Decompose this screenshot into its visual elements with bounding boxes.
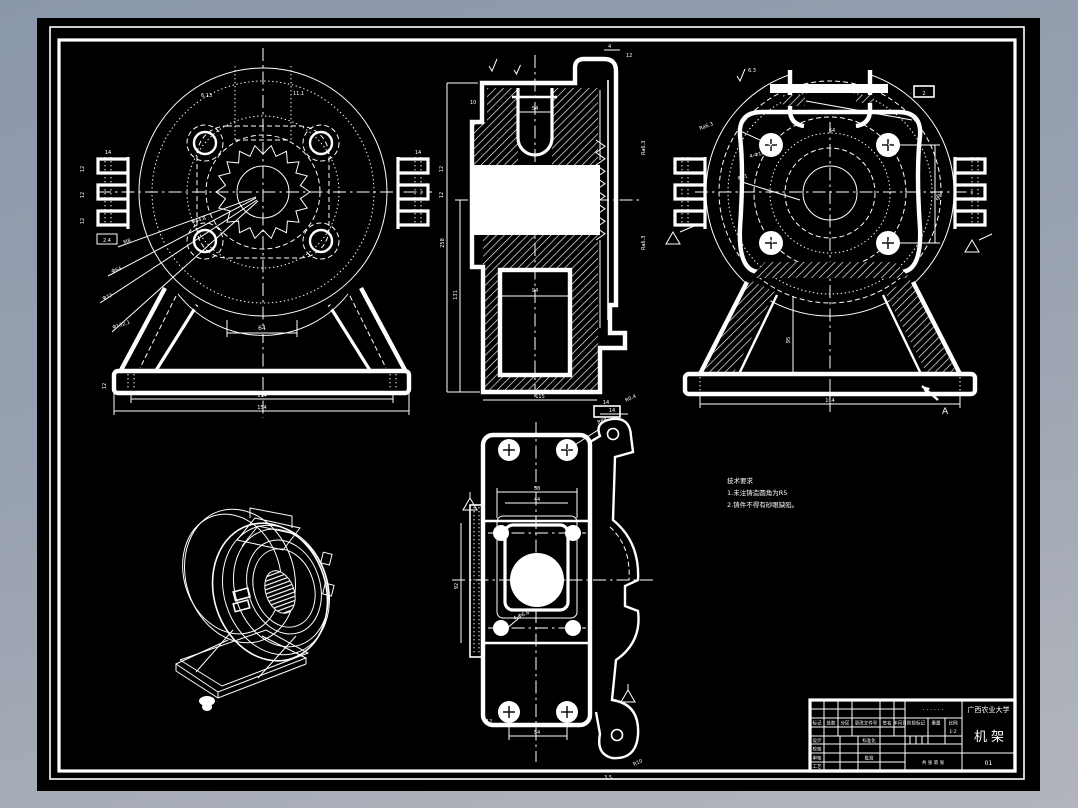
dim-label: 12 [80, 218, 86, 224]
view-arrow-label: A [942, 407, 949, 417]
title-block-label: 标记 [813, 720, 822, 727]
dim-label: 114 [257, 393, 267, 399]
notes-title: 技术要求 [727, 476, 754, 485]
sheet-number: 01 [985, 760, 993, 767]
dim-label: 14 [105, 150, 111, 156]
title-block-label: 批准 [865, 755, 874, 762]
dim-label: 14 [603, 400, 609, 406]
dim-label: 12 [439, 192, 445, 198]
title-block-label: 工艺 [813, 764, 822, 770]
dim-label: 44 [534, 497, 540, 503]
dim-label: 54 [534, 730, 540, 736]
title-block-label: 比例 [949, 720, 958, 727]
title-block-label: 签名 [883, 720, 892, 727]
cad-drawing-screenshot: 64 114 154 12 14 14 12 12 12 12 12 2.4 M… [0, 0, 1078, 808]
dim-label: 95 [786, 337, 792, 343]
sheet-count: 共 张 第 张 [922, 759, 945, 766]
dim-label: 12 [102, 383, 108, 389]
notes-line: 1.未注铸造圆角为R5 [727, 488, 787, 497]
dim-label: 64 [258, 325, 266, 332]
surface-finish-label: 6.3 [748, 68, 756, 74]
drawing-number: · · · · · · [923, 707, 944, 714]
dim-label: 14 [415, 150, 421, 156]
title-block-label: 重量 [932, 720, 941, 727]
dim-label: 258 [440, 238, 446, 248]
organization-name: 广西农业大学 [968, 705, 1010, 714]
dim-label: 115 [535, 394, 545, 400]
title-block-label: 阶段标记 [907, 720, 925, 727]
title-block-label: 更改文件号 [855, 720, 878, 727]
drawing-canvas[interactable]: 64 114 154 12 14 14 12 12 12 12 12 2.4 M… [0, 0, 1078, 808]
dim-label: 12 [80, 192, 86, 198]
title-block-label: 设计 [813, 737, 822, 744]
title-block-label: 校核 [813, 746, 822, 753]
dim-label: 96 [936, 194, 942, 200]
notes-line: 2.铸件不得有砂眼缺陷。 [727, 500, 798, 509]
dim-label: 54 [532, 106, 538, 112]
dim-label: 3.5 [604, 775, 612, 781]
dim-label: 2.4 [103, 238, 111, 244]
title-block-label: 标准化 [862, 737, 876, 744]
dim-label: 12 [486, 719, 492, 725]
dim-label: 164 [825, 398, 835, 404]
dim-label: 131 [453, 290, 459, 300]
title-block-label: 年月日 [893, 720, 907, 727]
dim-label: 4 [608, 44, 611, 50]
dim-label: 154 [257, 405, 267, 411]
title-block-label: 处数 [827, 720, 836, 727]
dim-label: 12 [80, 166, 86, 172]
dim-label: 10 [470, 100, 476, 106]
dim-label: 12 [626, 53, 632, 59]
dim-label: 12 [439, 166, 445, 172]
callout-label: 2 [922, 91, 925, 97]
surface-finish-label: Ra6.3 [641, 236, 647, 250]
title-block-label: 审核 [813, 755, 822, 762]
dim-label: 6.13 [201, 93, 212, 99]
dim-label: 64 [829, 128, 835, 134]
dim-label: 58 [534, 486, 540, 492]
dim-label: 94 [532, 288, 538, 294]
surface-finish-label: Ra6.3 [641, 141, 647, 155]
dim-label: 11.1 [293, 91, 304, 97]
part-name: 机架 [974, 730, 1008, 745]
title-block-label: 分区 [841, 720, 850, 727]
dim-label: 14 [609, 408, 615, 414]
scale-value: 1:2 [949, 729, 956, 735]
dim-label: 92 [454, 583, 460, 589]
